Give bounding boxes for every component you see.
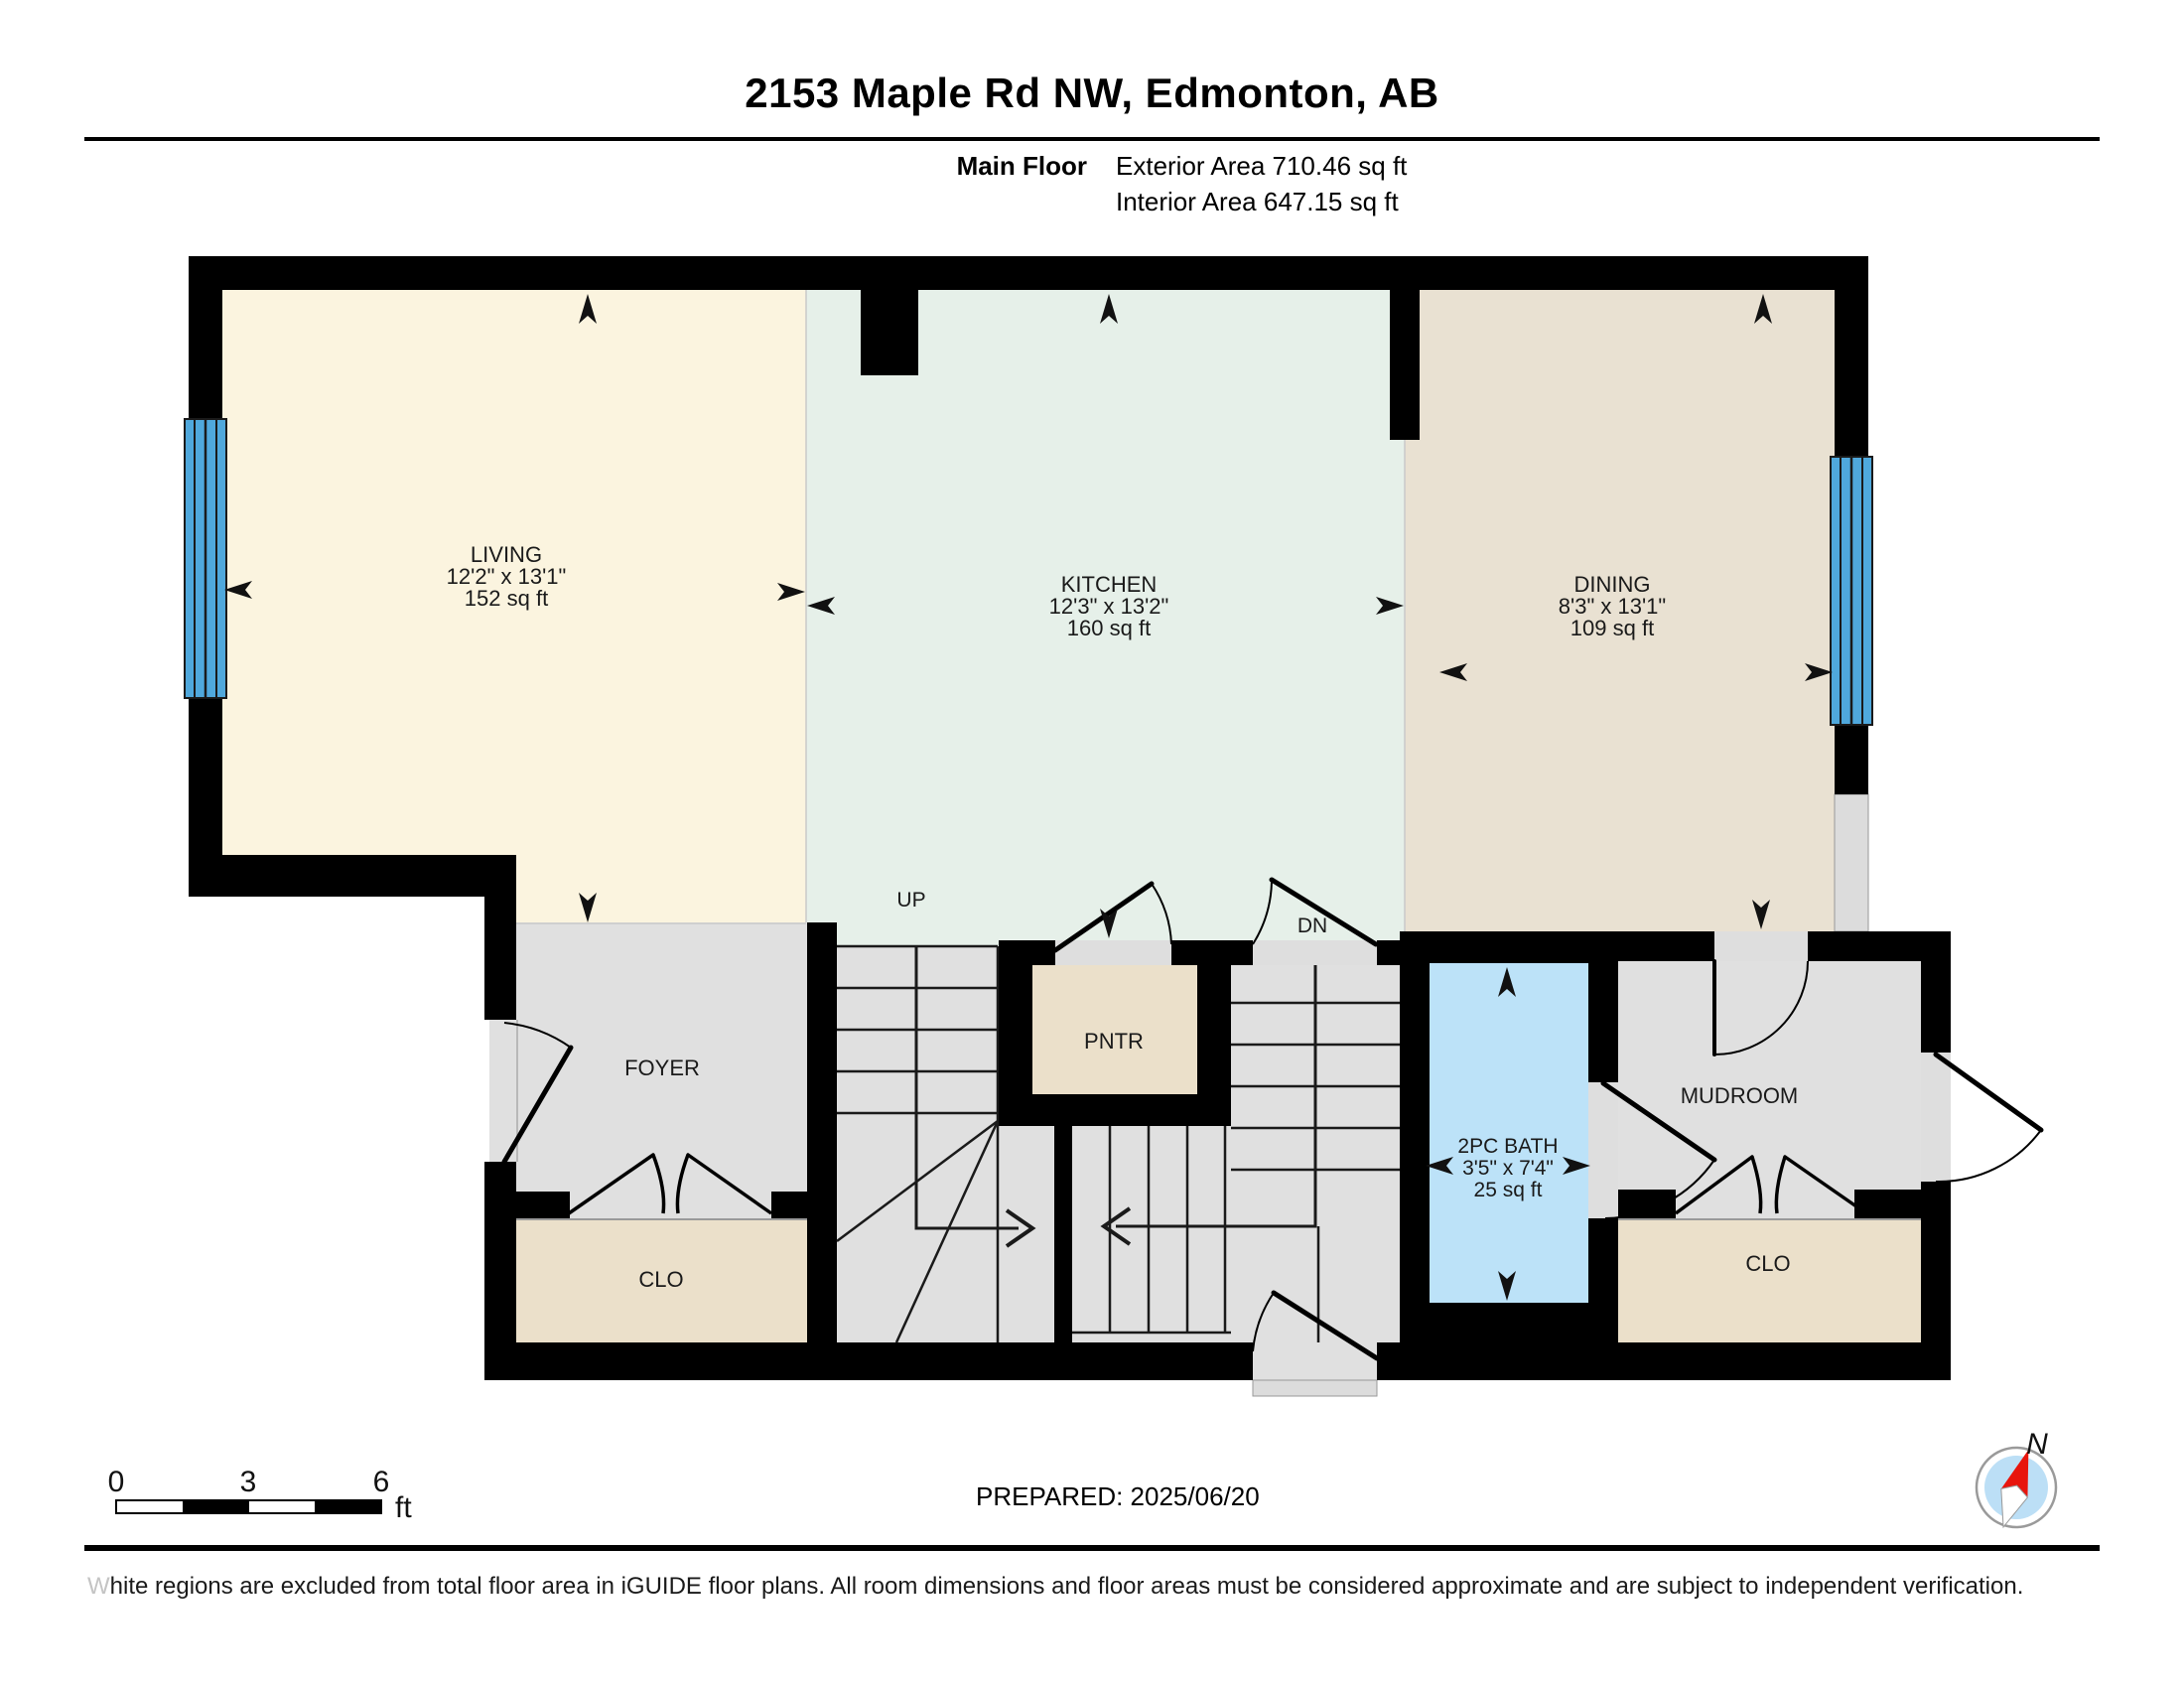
disclaimer-body: hite regions are excluded from total flo…	[110, 1573, 2024, 1600]
foyer-label: FOYER	[624, 1055, 700, 1080]
pantry-label: PNTR	[1084, 1029, 1144, 1054]
up-label: UP	[896, 889, 925, 912]
living-window	[185, 419, 226, 698]
prepared-date: PREPARED: 2025/06/20	[976, 1481, 1260, 1512]
scale-tick-6: 6	[373, 1466, 390, 1498]
bath-dims: 3'5" x 7'4"	[1462, 1157, 1554, 1180]
mudroom-label: MUDROOM	[1681, 1083, 1799, 1108]
living-area: 152 sq ft	[465, 586, 548, 611]
footer-divider	[84, 1545, 2100, 1551]
north-label: N	[2026, 1428, 2048, 1461]
bath-label: 2PC BATH	[1457, 1135, 1558, 1158]
closet-right-label: CLO	[1745, 1251, 1790, 1276]
closet-left-label: CLO	[638, 1267, 683, 1292]
scale-tick-0: 0	[108, 1466, 125, 1498]
bath-area: 25 sq ft	[1474, 1179, 1543, 1201]
entry-door-threshold	[489, 1020, 517, 1162]
dining-window	[1831, 457, 1872, 725]
mudroom-exterior-door	[1936, 1055, 2041, 1182]
mudroom-exterior-threshold	[1921, 1053, 1951, 1182]
dn-label: DN	[1297, 914, 1327, 937]
bath-floor	[1430, 963, 1588, 1303]
closet-right-floor	[1618, 1219, 1921, 1342]
floor-plan-drawing: LIVING 12'2" x 13'1" 152 sq ft KITCHEN 1…	[0, 0, 2184, 1688]
floor-plan-page: 2153 Maple Rd NW, Edmonton, AB Main Floo…	[0, 0, 2184, 1688]
compass: N	[1977, 1428, 2056, 1531]
dn-lower-flight-floor	[1072, 1126, 1231, 1342]
excluded-nook	[1835, 794, 1868, 931]
disclaimer-first-letter: W	[87, 1573, 110, 1600]
room-floors	[218, 290, 1951, 1396]
dn-door-threshold	[1253, 940, 1377, 965]
scale-unit: ft	[395, 1491, 412, 1524]
side-door-step	[1253, 1380, 1377, 1396]
scale-bar: 0 3 6 ft	[108, 1466, 413, 1524]
dining-area: 109 sq ft	[1570, 616, 1654, 640]
disclaimer-text: White regions are excluded from total fl…	[87, 1573, 2023, 1601]
pantry-door-threshold	[1055, 940, 1171, 965]
kitchen-area: 160 sq ft	[1067, 616, 1151, 640]
bath-door-threshold	[1588, 1082, 1618, 1218]
scale-tick-3: 3	[240, 1466, 257, 1498]
dining-mudroom-threshold	[1714, 931, 1808, 961]
